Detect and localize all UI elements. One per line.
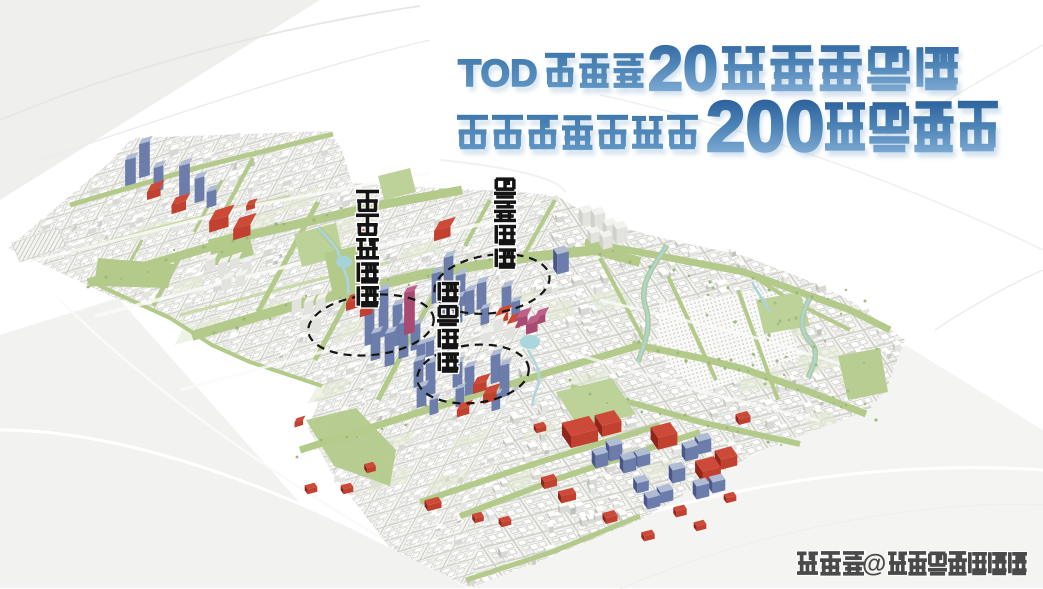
svg-text:TOD: TOD — [458, 53, 538, 95]
svg-text:200: 200 — [706, 88, 824, 167]
svg-text:@: @ — [862, 550, 886, 578]
